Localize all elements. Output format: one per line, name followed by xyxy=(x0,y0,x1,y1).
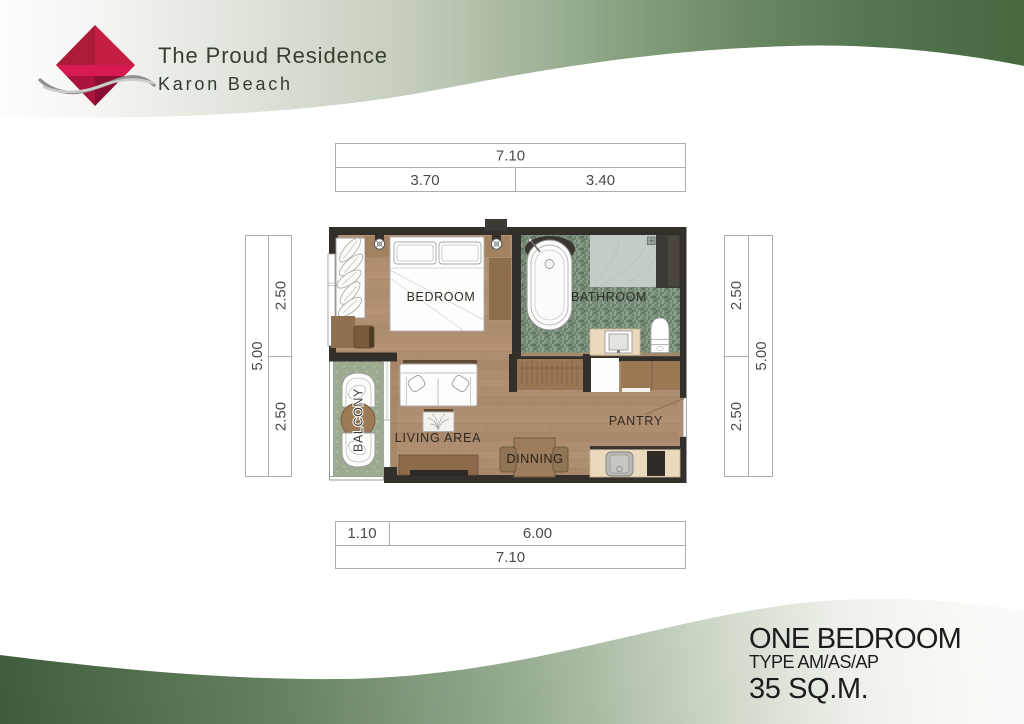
svg-text:2.50: 2.50 xyxy=(728,281,745,310)
svg-text:The Proud Residence: The Proud Residence xyxy=(158,43,388,68)
svg-text:7.10: 7.10 xyxy=(496,549,525,566)
svg-text:2.50: 2.50 xyxy=(272,281,289,310)
svg-text:PANTRY: PANTRY xyxy=(609,414,663,428)
svg-text:5.00: 5.00 xyxy=(753,341,770,370)
svg-text:BATHROOM: BATHROOM xyxy=(571,290,647,304)
svg-text:5.00: 5.00 xyxy=(249,341,266,370)
svg-text:Karon Beach: Karon Beach xyxy=(158,74,293,94)
svg-text:2.50: 2.50 xyxy=(728,402,745,431)
svg-text:3.70: 3.70 xyxy=(410,172,439,189)
svg-text:BALCONY: BALCONY xyxy=(352,388,366,452)
svg-text:DINNING: DINNING xyxy=(507,452,564,466)
svg-text:LIVING AREA: LIVING AREA xyxy=(395,431,482,445)
svg-text:7.10: 7.10 xyxy=(496,148,525,165)
svg-text:35 SQ.M.: 35 SQ.M. xyxy=(749,673,868,705)
svg-text:3.40: 3.40 xyxy=(586,172,615,189)
svg-text:1.10: 1.10 xyxy=(347,525,376,542)
svg-text:6.00: 6.00 xyxy=(523,525,552,542)
svg-text:ONE BEDROOM: ONE BEDROOM xyxy=(749,623,961,655)
svg-text:2.50: 2.50 xyxy=(272,402,289,431)
svg-text:TYPE AM/AS/AP: TYPE AM/AS/AP xyxy=(749,652,879,672)
svg-text:BEDROOM: BEDROOM xyxy=(407,290,476,304)
